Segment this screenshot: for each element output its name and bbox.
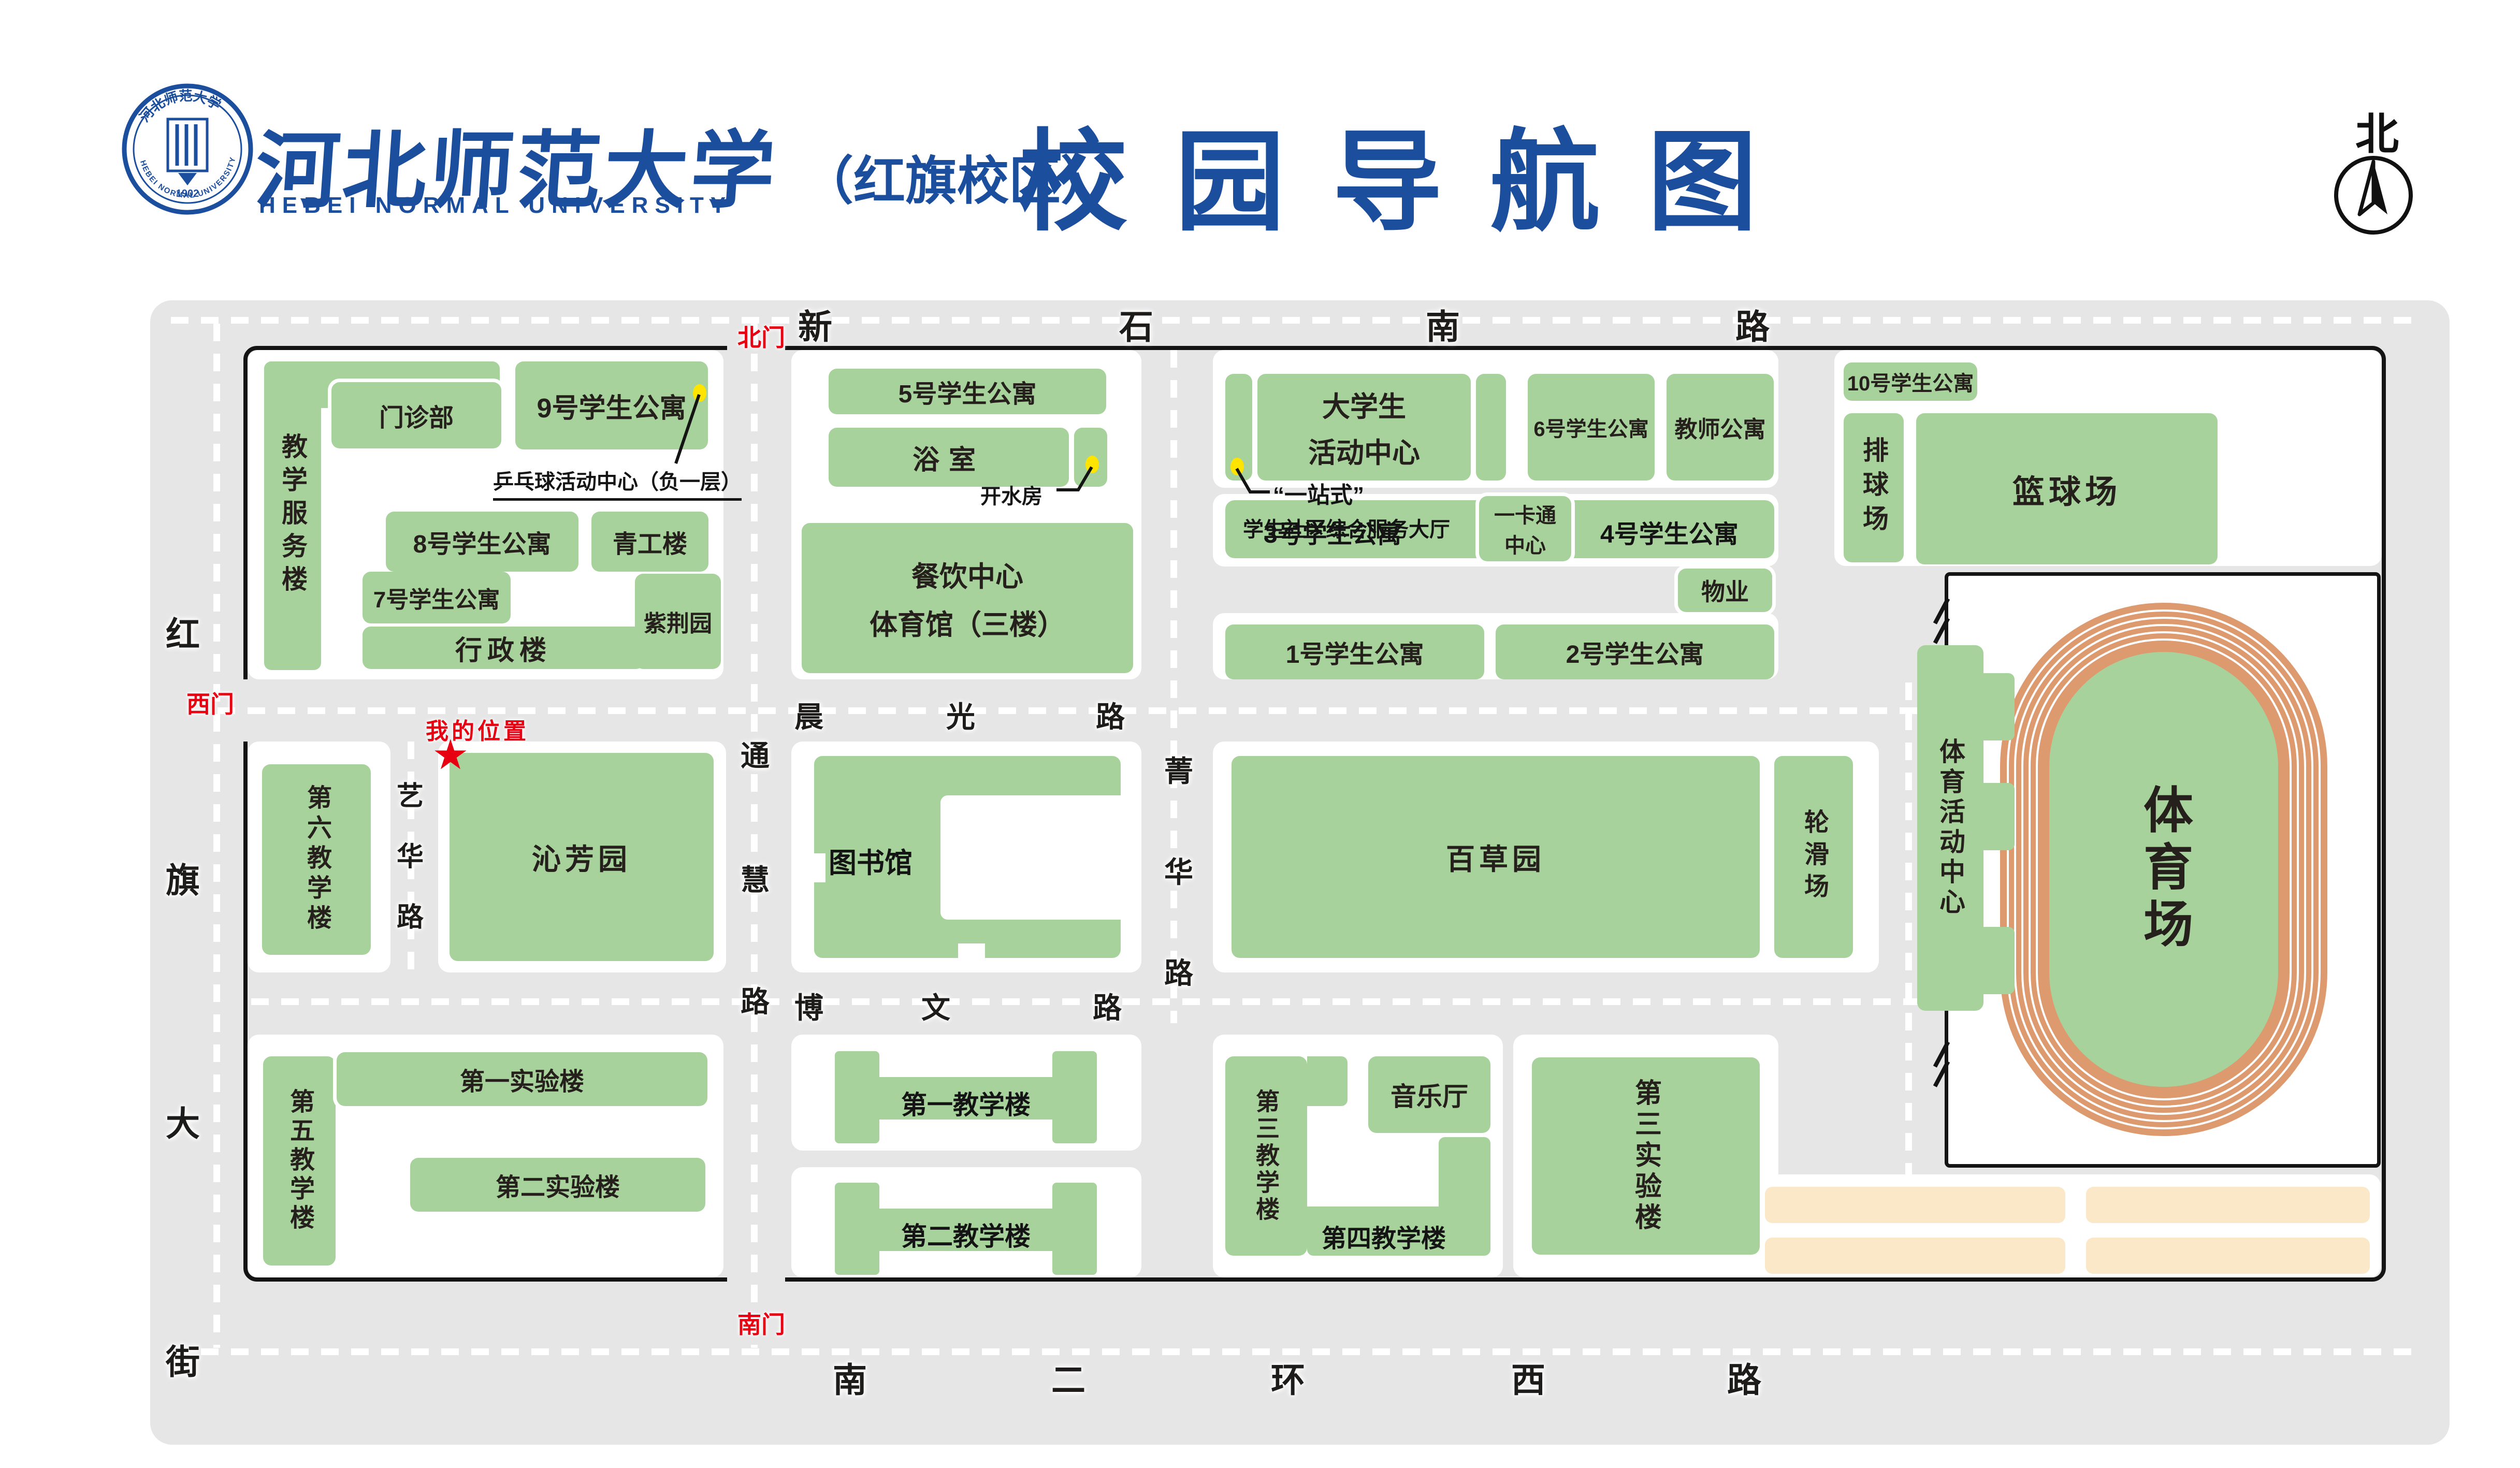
sports-center-wing — [1981, 927, 2015, 994]
west-gate-label: 西门 — [186, 686, 234, 720]
building-lab2: 第二实验楼 — [410, 1158, 705, 1212]
road-north-char: 路 — [1735, 299, 1770, 349]
building-qinfang-garden: 沁芳园 — [450, 753, 714, 961]
road-north-char: 石 — [1119, 299, 1153, 349]
building-student-center-east-wing — [1476, 374, 1506, 481]
building-teach1-label: 第一教学楼 — [901, 1084, 1031, 1122]
building-clinic: 门诊部 — [331, 382, 501, 448]
building-card-center: 一卡通中心 — [1479, 496, 1571, 561]
court-rect — [2086, 1238, 2370, 1274]
building-bath: 浴室 — [829, 428, 1069, 487]
building-basketball-court: 篮球场 — [1916, 413, 2218, 564]
road-yihua-char: 华 — [397, 835, 424, 874]
road-dash-east — [1905, 682, 1912, 1174]
building-library-label: 图书馆 — [829, 840, 913, 881]
north-gate-label: 北门 — [737, 319, 785, 353]
building-teach5: 第五教学楼 — [263, 1056, 336, 1266]
court-rect — [1765, 1187, 2065, 1223]
building-teach1-west-cap — [835, 1051, 879, 1143]
road-tonghui-char: 通 — [741, 733, 770, 775]
building-skating-rink: 轮滑场 — [1774, 756, 1853, 958]
building-teach2-label: 第二教学楼 — [901, 1216, 1031, 1253]
building-teach4-east-wing — [1439, 1137, 1490, 1210]
road-dash-north — [171, 317, 2413, 324]
boiler-callout: 开水房 — [980, 479, 1042, 510]
building-teach3-wing — [1307, 1056, 1348, 1106]
building-dorm2: 2号学生公寓 — [1496, 624, 1774, 679]
building-baicao-garden: 百草园 — [1232, 756, 1760, 958]
stadium-enclosure: 体育场 — [1945, 572, 2381, 1168]
campus-map-poster: 河北师范大学 HEBEI NORMAL UNIVERSITY 1902 河北师范… — [0, 0, 2520, 1468]
university-seal-logo: 河北师范大学 HEBEI NORMAL UNIVERSITY 1902 — [120, 82, 255, 216]
road-dash-main-ns — [751, 324, 758, 1348]
pingpong-callout: 乒乓球活动中心（负一层） — [493, 465, 742, 501]
road-jinghua-char: 菁 — [1164, 748, 1193, 790]
building-teach2-east-cap — [1052, 1183, 1097, 1275]
stadium-infield: 体育场 — [2049, 652, 2278, 1087]
building-music-hall: 音乐厅 — [1368, 1056, 1490, 1133]
road-jinghua-char: 路 — [1164, 950, 1193, 992]
building-student-center: 大学生活动中心 — [1257, 374, 1471, 481]
library-notch-west — [811, 853, 825, 882]
road-dash-jinghua — [1170, 350, 1177, 1023]
compass-icon — [2329, 151, 2417, 239]
building-stadium-label: 体育场 — [2128, 784, 2200, 955]
road-south-char: 二 — [1051, 1353, 1085, 1402]
one-stop-marker-dot — [1230, 458, 1244, 475]
one-stop-callout-line2: 学生社区综合服务大厅 — [1243, 513, 1450, 543]
road-north-char: 南 — [1426, 299, 1460, 349]
building-dorm7: 7号学生公寓 — [363, 572, 511, 623]
building-dorm9: 9号学生公寓 — [515, 361, 708, 449]
building-dorm6: 6号学生公寓 — [1528, 374, 1655, 481]
building-zijing: 紫荆园 — [635, 574, 721, 669]
road-yihua-char: 艺 — [397, 774, 424, 813]
my-location-star-icon: ★ — [432, 734, 469, 776]
building-volleyball-court: 排球场 — [1844, 413, 1904, 562]
road-chenguang-char: 晨 — [794, 694, 823, 736]
seal-year: 1902 — [176, 188, 199, 199]
road-jinghua-char: 华 — [1164, 849, 1193, 891]
road-west-char: 红 — [166, 607, 200, 657]
building-teach3: 第三教学楼 — [1225, 1056, 1307, 1256]
road-yihua-char: 路 — [397, 895, 424, 934]
one-stop-callout-line1: “一站式” — [1273, 476, 1364, 510]
building-teach2-west-cap — [835, 1183, 879, 1275]
road-tonghui-char: 路 — [741, 979, 770, 1021]
road-south-char: 南 — [833, 1353, 867, 1402]
road-south-char: 环 — [1271, 1353, 1305, 1402]
sports-center-wing — [1981, 783, 2015, 850]
boiler-marker-dot — [1085, 456, 1099, 473]
road-dash-bowen — [251, 998, 1932, 1005]
building-teach1-east-cap — [1052, 1051, 1097, 1143]
road-tonghui-char: 慧 — [741, 857, 770, 899]
road-west-char: 旗 — [166, 853, 200, 903]
building-lab3: 第三实验楼 — [1532, 1057, 1760, 1255]
road-west-char: 街 — [166, 1334, 200, 1384]
court-rect — [2086, 1187, 2370, 1223]
road-bowen-char: 博 — [794, 985, 823, 1027]
pingpong-marker-dot — [693, 384, 706, 402]
building-dorm8: 8号学生公寓 — [386, 512, 578, 572]
building-property: 物业 — [1678, 569, 1772, 612]
building-dorm4-label: 4号学生公寓 — [1600, 514, 1739, 550]
road-chenguang-char: 光 — [946, 694, 975, 736]
road-bowen-char: 文 — [921, 985, 950, 1027]
road-chenguang-char: 路 — [1096, 694, 1125, 736]
building-admin: 行政楼 — [363, 627, 644, 669]
road-south-char: 路 — [1727, 1353, 1761, 1402]
library-notch-south — [958, 943, 985, 959]
university-name-en: HEBEI NORMAL UNIVERSITY — [259, 193, 732, 219]
building-canteen-gym: 餐饮中心体育馆（三楼） — [802, 523, 1133, 673]
building-sports-center: 体育活动中心 — [1917, 645, 1983, 1011]
building-teach4-label: 第四教学楼 — [1322, 1218, 1446, 1254]
road-west-char: 大 — [166, 1096, 200, 1146]
road-south-char: 西 — [1511, 1353, 1545, 1402]
road-dash-west — [213, 324, 220, 1348]
building-lab1: 第一实验楼 — [337, 1052, 707, 1106]
building-dorm10: 10号学生公寓 — [1844, 362, 1977, 401]
building-dorm1: 1号学生公寓 — [1225, 624, 1484, 679]
building-teacher-apartment: 教师公寓 — [1667, 374, 1774, 481]
road-bowen-char: 路 — [1093, 985, 1122, 1027]
building-teach6: 第六教学楼 — [262, 764, 371, 955]
library-courtyard — [940, 795, 1121, 920]
south-gate-label: 南门 — [737, 1306, 785, 1340]
sports-center-wing — [1981, 673, 2015, 740]
page-title: 校园导航图 — [1018, 93, 1805, 252]
building-dorm5: 5号学生公寓 — [829, 369, 1106, 414]
road-north-char: 新 — [798, 299, 832, 349]
building-qinggong: 青工楼 — [591, 512, 708, 572]
court-rect — [1765, 1238, 2065, 1274]
